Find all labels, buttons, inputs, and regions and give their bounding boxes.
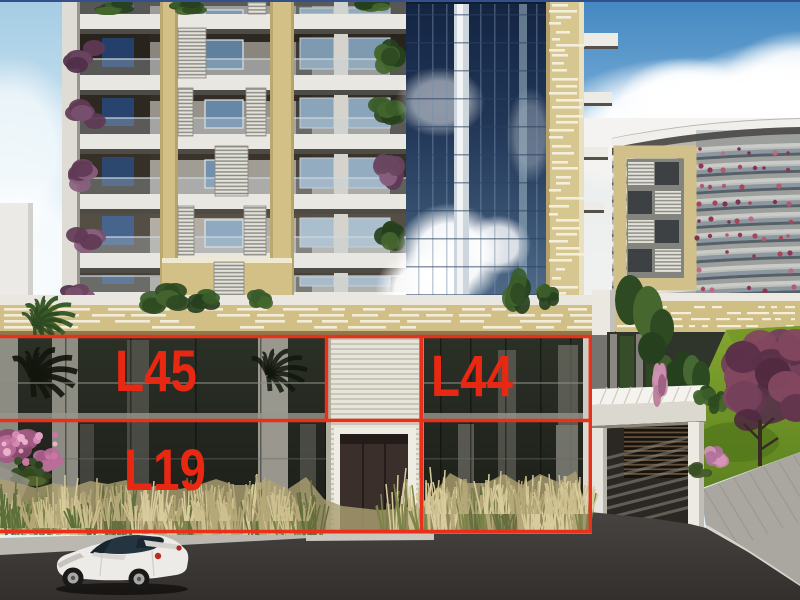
svg-text:L44: L44 (431, 345, 513, 410)
svg-text:L19: L19 (124, 439, 206, 504)
svg-text:L45: L45 (115, 340, 197, 405)
